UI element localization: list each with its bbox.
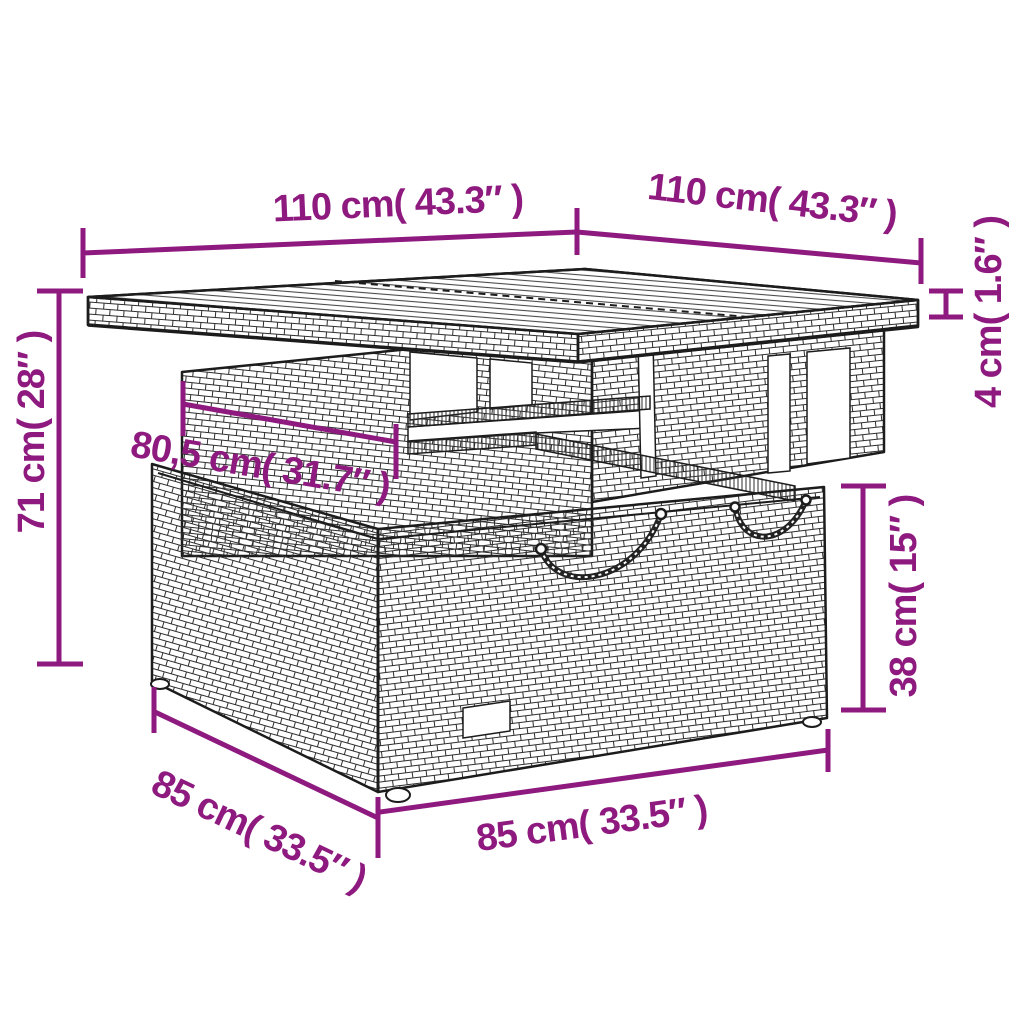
dimension-top-thickness: 4 cm( 1.6″ ) (929, 216, 1010, 408)
pedestal-slot (768, 354, 790, 473)
handle-ring-icon (802, 496, 811, 505)
dim-base-width-label: 85 cm( 33.5″ ) (474, 788, 710, 860)
handle-ring-icon (536, 544, 546, 554)
pedestal-right-opening (807, 348, 850, 464)
pedestal-window-right (490, 359, 532, 409)
dimension-top-width: 110 cm( 43.3″ ) (83, 178, 577, 278)
dim-base-height-label: 38 cm( 15″ ) (883, 495, 925, 698)
handle-ring-icon (656, 509, 666, 519)
dim-top-depth-label: 110 cm( 43.3″ ) (645, 166, 899, 236)
dim-base-depth-label: 85 cm( 33.5″ ) (145, 762, 373, 900)
dimension-total-height: 71 cm( 28″ ) (11, 290, 83, 665)
handle-ring-icon (731, 503, 740, 512)
dimension-top-depth: 110 cm( 43.3″ ) (577, 166, 921, 284)
foot-front (386, 788, 410, 802)
dim-top-thickness-label: 4 cm( 1.6″ ) (968, 216, 1010, 408)
base-vent-cutout (463, 701, 510, 738)
furniture-dimension-diagram: 110 cm( 43.3″ ) 110 cm( 43.3″ ) 4 cm( 1.… (0, 0, 1024, 1024)
dim-top-width-label: 110 cm( 43.3″ ) (272, 178, 524, 231)
dim-total-height-label: 71 cm( 28″ ) (11, 331, 53, 534)
foot-right (803, 717, 821, 727)
dimension-base-height: 38 cm( 15″ ) (841, 486, 925, 710)
